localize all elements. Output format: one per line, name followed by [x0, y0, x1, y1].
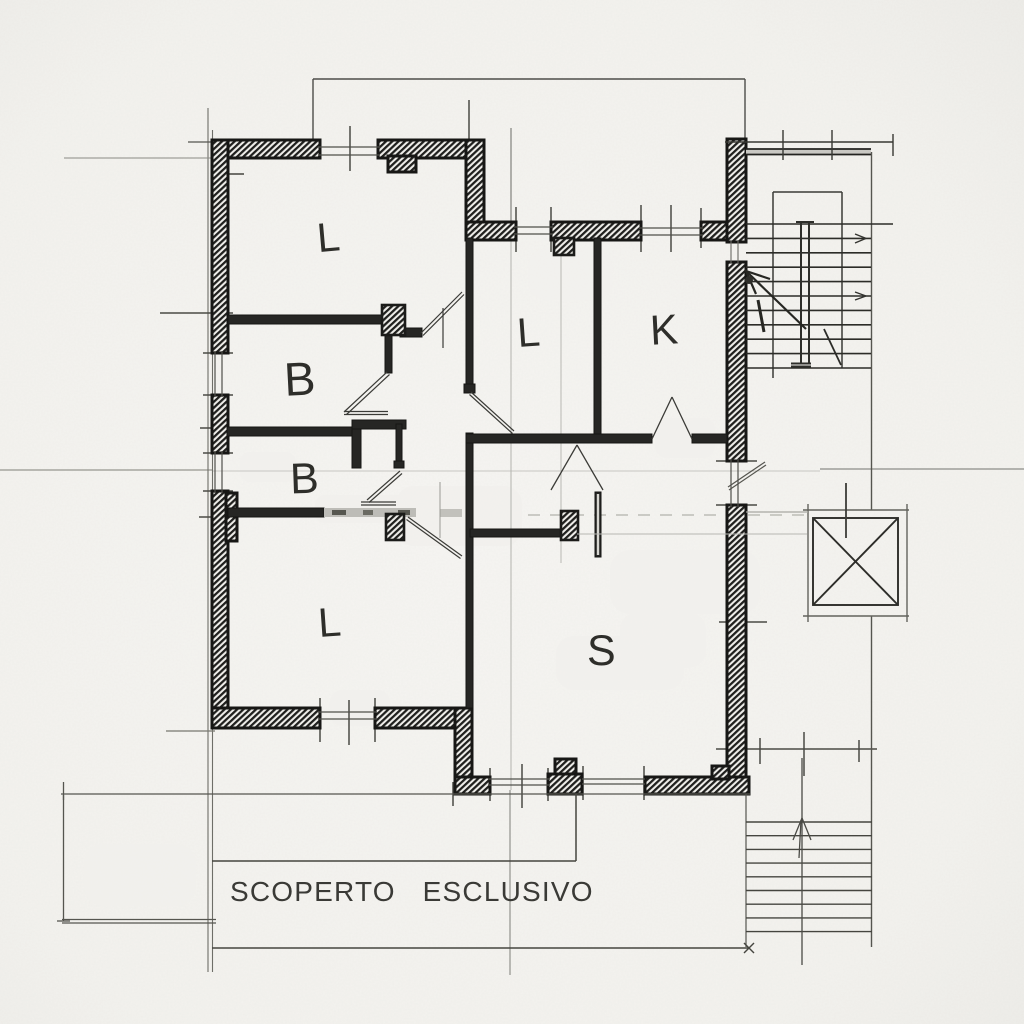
svg-text:L: L [516, 309, 542, 356]
svg-text:S: S [587, 627, 616, 675]
svg-text:B: B [289, 455, 319, 504]
svg-text:L: L [317, 599, 343, 646]
svg-text:K: K [649, 305, 679, 353]
svg-text:B: B [283, 351, 317, 406]
svg-text:SCOPERTO ESCLUSIVO: SCOPERTO ESCLUSIVO [230, 876, 594, 907]
svg-text:L: L [315, 213, 342, 261]
